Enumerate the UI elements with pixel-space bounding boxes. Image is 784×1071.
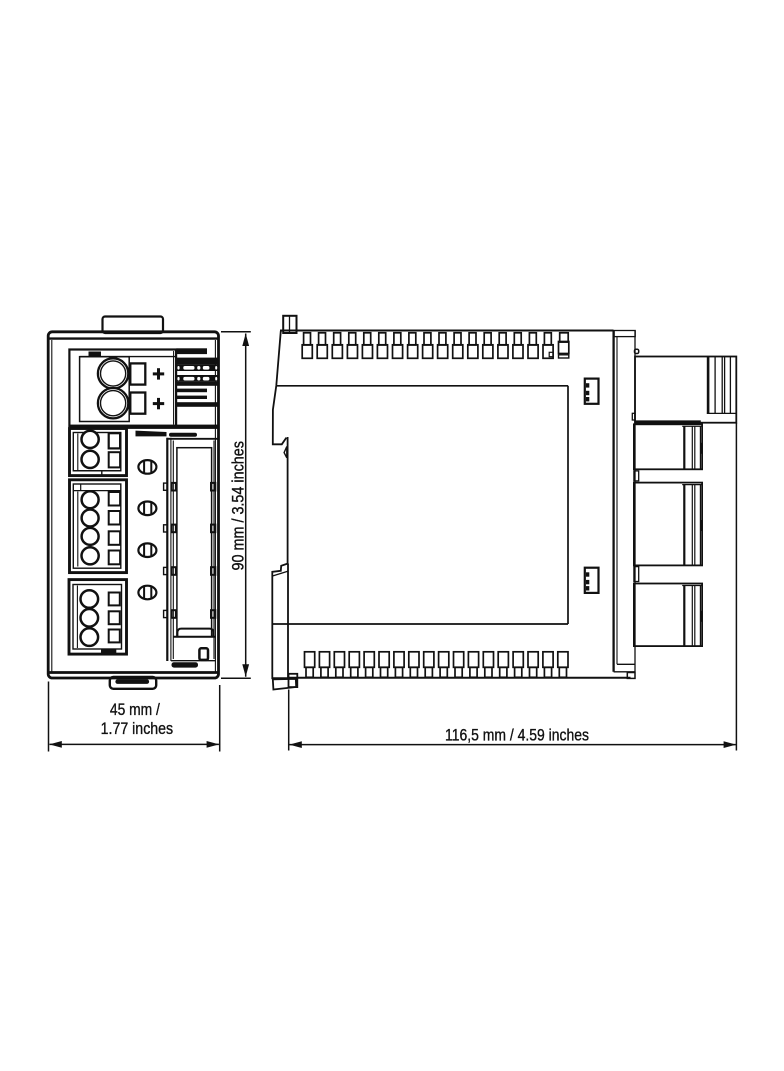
svg-text:45 mm /: 45 mm / (110, 701, 160, 719)
svg-text:1.77 inches: 1.77 inches (101, 720, 174, 738)
svg-text:90 mm / 3.54 inches: 90 mm / 3.54 inches (229, 441, 247, 571)
svg-text:116,5 mm / 4.59 inches: 116,5 mm / 4.59 inches (445, 726, 589, 744)
